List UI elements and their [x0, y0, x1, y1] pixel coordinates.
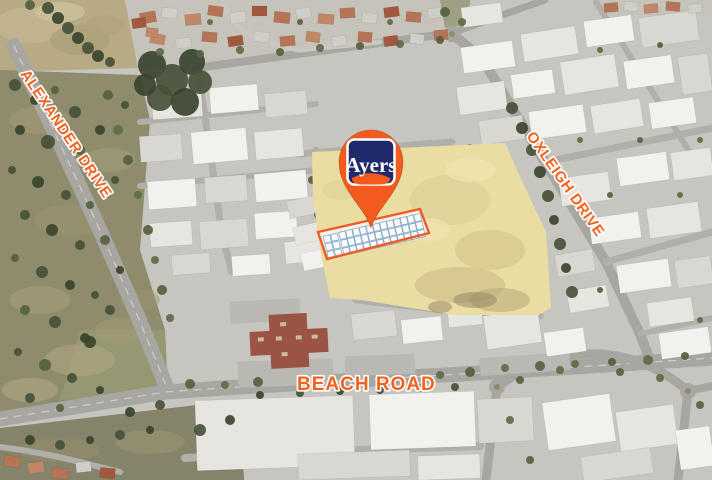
aerial-map: ALEXANDER DRIVE OXLEIGH DRIVE BEACH ROAD… — [0, 0, 712, 480]
ayers-logo-text: Ayers — [346, 153, 397, 177]
road-label-beach-road: BEACH ROAD — [297, 374, 436, 395]
satellite-image: ALEXANDER DRIVE OXLEIGH DRIVE BEACH ROAD… — [0, 0, 712, 480]
